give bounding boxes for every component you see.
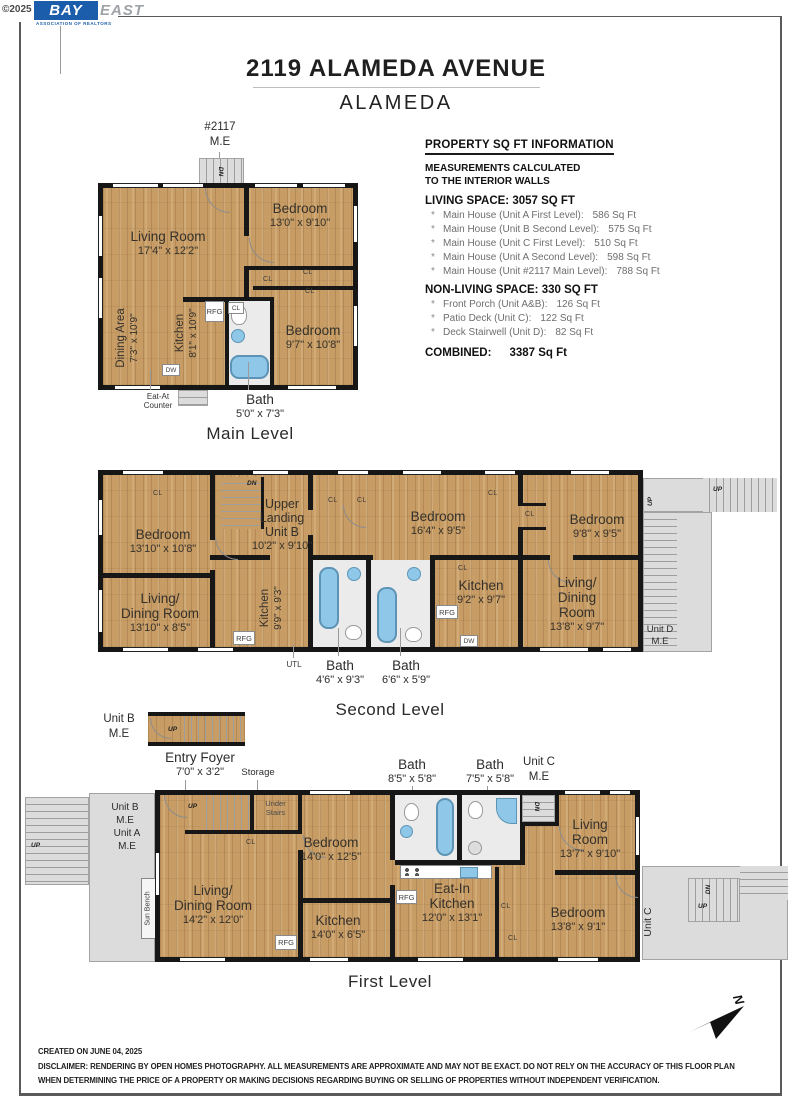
unit-a-label: Unit A M.E <box>105 827 149 853</box>
room-label-bedroom: Bedroom 13'0" x 9'10" <box>240 201 360 229</box>
sink <box>231 329 245 343</box>
unit-label-line: Unit C <box>643 907 655 936</box>
window <box>418 957 463 962</box>
room-dims: 9'7" x 10'8" <box>253 339 373 351</box>
closet-label: CL <box>525 511 535 518</box>
bullet: * <box>431 224 443 235</box>
wall <box>495 867 499 957</box>
refrigerator-tag: RFG <box>233 631 255 645</box>
window <box>303 183 345 188</box>
disclaimer-line2: WHEN DETERMINING THE PRICE OF A PROPERTY… <box>38 1076 659 1085</box>
room-name: Living <box>545 817 635 832</box>
page-border-top <box>118 16 782 17</box>
up-label: UP <box>698 903 707 910</box>
up-label: UP <box>188 803 197 810</box>
combined-value: 3387 Sq Ft <box>509 347 567 359</box>
toilet <box>468 801 483 819</box>
unit-b-label: Unit B M.E <box>103 801 147 827</box>
disclaimer-line1: DISCLAIMER: RENDERING BY OPEN HOMES PHOT… <box>38 1062 735 1071</box>
item-label: Main House (Unit A First Level): <box>443 210 584 221</box>
closet-label: CL <box>263 276 273 283</box>
item-label: Main House (Unit B Second Level): <box>443 224 599 235</box>
item-label: Main House (Unit C First Level): <box>443 238 585 249</box>
refrigerator-tag: RFG <box>205 301 224 322</box>
room-name: Landing <box>242 511 322 525</box>
page-title: 2119 ALAMEDA AVENUE <box>0 55 792 83</box>
room-dims: 12'0" x 13'1" <box>412 912 492 924</box>
combined-total: COMBINED:3387 Sq Ft <box>425 347 705 359</box>
room-label-bedroom: Bedroom 16'4" x 9'5" <box>388 509 488 537</box>
dishwasher-tag: DW <box>460 635 478 647</box>
wall <box>244 266 353 270</box>
item-value: 510 Sq Ft <box>594 238 637 249</box>
room-name: Room <box>537 605 617 620</box>
room-dims: 9'8" x 9'5" <box>552 528 642 540</box>
room-label-kitchen: Kitchen 9'9" x 9'3" <box>258 568 286 648</box>
annotation-line: Stairs <box>253 809 298 818</box>
unit-label-line: Unit A <box>105 827 149 840</box>
title-divider <box>253 87 540 88</box>
room-dims: 13'8" x 9'7" <box>537 621 617 633</box>
measurements-line2: TO THE INTERIOR WALLS <box>425 175 705 188</box>
nonliving-item: *Patio Deck (Unit C):122 Sq Ft <box>431 313 705 324</box>
living-item: *Main House (Unit B Second Level):575 Sq… <box>431 224 705 235</box>
bullet: * <box>431 238 443 249</box>
nonliving-space-heading: NON-LIVING SPACE: 330 SQ FT <box>425 284 705 296</box>
bullet: * <box>431 210 443 221</box>
dn-label: DN <box>217 167 224 176</box>
room-label-bedroom: Bedroom 9'8" x 9'5" <box>552 512 642 540</box>
room-dims: 13'10" x 8'5" <box>110 622 210 634</box>
room-name: Bedroom <box>113 527 213 542</box>
room-label-eat-in-kitchen: Eat-In Kitchen 12'0" x 13'1" <box>412 881 492 925</box>
interior-stairs <box>200 795 250 830</box>
room-name: Entry Foyer <box>160 750 240 766</box>
leader-line <box>338 628 339 656</box>
room-dims: 14'0" x 12'5" <box>281 851 381 863</box>
annotation-line: Eat-At <box>128 392 188 401</box>
room-dims: 17'4" x 12'2" <box>108 245 228 257</box>
room-dims: 5'0" x 7'3" <box>215 408 305 421</box>
window <box>98 278 103 318</box>
wall <box>430 555 550 560</box>
room-name: Bedroom <box>552 512 642 527</box>
item-value: 122 Sq Ft <box>540 313 583 324</box>
window <box>288 385 336 390</box>
level-caption: Second Level <box>290 700 490 720</box>
room-label-bedroom: Bedroom 14'0" x 12'5" <box>281 835 381 863</box>
wall <box>253 286 353 290</box>
window <box>155 853 160 895</box>
closet-label: CL <box>357 497 367 504</box>
door-arc <box>205 188 230 213</box>
room-dims: 14'0" x 6'5" <box>298 929 378 941</box>
floor-drain <box>468 841 482 855</box>
room-name: Eat-In <box>412 881 492 896</box>
room-label-bedroom: Bedroom 9'7" x 10'8" <box>253 323 373 351</box>
room-dims: 7'0" x 3'2" <box>160 766 240 779</box>
unit-label-line: M.E <box>196 135 244 150</box>
room-name: Living/ <box>173 883 253 898</box>
storage-annotation: Storage <box>230 768 286 779</box>
room-label-living-dining: Living/ Dining Room 13'10" x 8'5" <box>110 591 210 635</box>
room-label-living-dining: Living/ Dining Room 14'2" x 12'0" <box>173 883 253 927</box>
door-arc <box>249 238 274 263</box>
bath-annotation: Bath 5'0" x 7'3" <box>215 392 305 420</box>
room-dims: 9'9" x 9'3" <box>273 586 284 630</box>
room-name: Bedroom <box>253 323 373 338</box>
living-space-heading: LIVING SPACE: 3057 SQ FT <box>425 195 705 207</box>
floorplan-page: ©2025 BAY EAST ASSOCIATION OF REALTORS 2… <box>0 0 792 1120</box>
window <box>198 647 233 652</box>
closet-label: CL <box>458 565 468 572</box>
unit-label-line: Unit B <box>103 801 147 814</box>
living-item: *Main House (Unit #2117 Main Level):788 … <box>431 266 705 277</box>
sink <box>347 567 361 581</box>
room-name: Kitchen <box>259 589 272 627</box>
room-label-living-room: Living Room 17'4" x 12'2" <box>108 229 228 257</box>
closet-label: CL <box>153 490 163 497</box>
room-dims: 9'2" x 9'7" <box>441 594 521 606</box>
closet-label: CL <box>501 903 511 910</box>
room-name: Bedroom <box>388 509 488 524</box>
room-label-kitchen: Kitchen 8'1" x 10'9" <box>173 293 201 373</box>
leader-line <box>150 370 151 390</box>
unit-label-line: M.E <box>96 727 142 742</box>
window <box>565 790 600 795</box>
room-name: Kitchen <box>174 314 187 352</box>
room-dims: 16'4" x 9'5" <box>388 525 488 537</box>
window <box>635 817 640 855</box>
closet-label: CL <box>303 269 313 276</box>
window <box>571 470 609 475</box>
bathtub <box>377 587 397 643</box>
wall <box>518 503 546 506</box>
dn-label: DN <box>247 480 256 487</box>
sink <box>400 825 413 838</box>
unit-2117-label: #2117 M.E <box>196 120 244 150</box>
first-level-plan: UP Under Stairs CL DN <box>155 790 640 962</box>
room-dims: 14'2" x 12'0" <box>173 914 253 926</box>
unit-label-line: Unit C <box>516 755 562 770</box>
second-level-plan: DN RFG RFG DW CL CL CL CL CL CL <box>98 470 643 652</box>
annotation-line: Counter <box>128 401 188 410</box>
room-name: Bath <box>215 392 305 408</box>
room-dims: 13'0" x 9'10" <box>240 217 360 229</box>
wall <box>103 573 210 578</box>
room-name: Bedroom <box>240 201 360 216</box>
sink <box>407 567 421 581</box>
up-label: UP <box>713 486 722 493</box>
created-date: CREATED ON JUNE 04, 2025 <box>38 1047 142 1056</box>
bullet: * <box>431 299 443 310</box>
wall <box>210 570 215 647</box>
room-dims: 13'7" x 9'10" <box>545 848 635 860</box>
item-value: 126 Sq Ft <box>556 299 599 310</box>
refrigerator-tag: RFG <box>275 935 297 950</box>
living-item: *Main House (Unit A First Level):586 Sq … <box>431 210 705 221</box>
closet-label: CL <box>328 497 338 504</box>
door-arc <box>615 875 638 898</box>
bullet: * <box>431 266 443 277</box>
wall <box>185 830 302 834</box>
stove-burners <box>404 868 424 876</box>
item-value: 82 Sq Ft <box>555 327 593 338</box>
window <box>98 216 103 256</box>
window <box>338 470 368 475</box>
wall <box>518 527 546 530</box>
kitchen-sink <box>460 867 478 878</box>
room-name: Unit B <box>242 525 322 539</box>
measurements-line1: MEASUREMENTS CALCULATED <box>425 162 705 175</box>
window <box>98 590 103 632</box>
bathtub <box>230 355 269 379</box>
item-label: Front Porch (Unit A&B): <box>443 299 547 310</box>
up-label: UP <box>31 842 40 849</box>
page-border-bottom <box>19 1093 782 1096</box>
window <box>123 647 168 652</box>
bullet: * <box>431 313 443 324</box>
unit-label-line: Unit B <box>96 712 142 727</box>
window <box>163 183 203 188</box>
room-dims: 8'5" x 5'8" <box>377 773 447 786</box>
room-name: Kitchen <box>441 578 521 593</box>
dn-label: DN <box>533 802 540 811</box>
window <box>115 385 160 390</box>
unit-label-line: M.E <box>105 840 149 853</box>
room-label-bedroom: Bedroom 13'8" x 9'1" <box>528 905 628 933</box>
exterior-stairs <box>25 797 89 885</box>
wall <box>210 555 270 560</box>
refrigerator-tag: RFG <box>436 605 458 619</box>
unit-b-stairs: UP <box>148 712 245 746</box>
unit-c-label: Unit C M.E <box>516 755 562 785</box>
unit-label-line: M.E <box>103 814 147 827</box>
room-name: Bath <box>455 757 525 773</box>
deck-stairs <box>740 866 788 900</box>
window <box>98 500 103 535</box>
room-dims: 13'10" x 10'8" <box>113 543 213 555</box>
closet-label: CL <box>508 935 518 942</box>
property-sqft-info: PROPERTY SQ FT INFORMATION MEASUREMENTS … <box>425 135 705 359</box>
window <box>603 647 631 652</box>
room-name: Dining Room <box>173 898 253 913</box>
closet-label: CL <box>246 839 256 846</box>
bullet: * <box>431 252 443 263</box>
room-dims: 7'3" x 10'9" <box>129 313 140 362</box>
room-dims: 13'8" x 9'1" <box>528 921 628 933</box>
bullet: * <box>431 327 443 338</box>
item-value: 788 Sq Ft <box>616 266 659 277</box>
room-name: Dining <box>537 590 617 605</box>
room-name: Dining Room <box>110 606 210 621</box>
room-label-bedroom: Bedroom 13'10" x 10'8" <box>113 527 213 555</box>
wall <box>390 885 395 957</box>
toilet <box>345 625 362 640</box>
toilet <box>405 627 422 642</box>
bath-annotation: Bath 8'5" x 5'8" <box>377 757 447 785</box>
room-dims: 7'5" x 5'8" <box>455 773 525 786</box>
sun-bench-label: Sun Bench <box>145 891 152 925</box>
item-label: Deck Stairwell (Unit D): <box>443 327 546 338</box>
room-dims: 6'6" x 5'9" <box>368 674 444 687</box>
room-name: Kitchen <box>298 913 378 928</box>
item-value: 598 Sq Ft <box>607 252 650 263</box>
toilet <box>404 803 419 821</box>
exterior-stairs <box>703 478 777 512</box>
item-label: Main House (Unit #2117 Main Level): <box>443 266 607 277</box>
logo-bay: BAY <box>34 1 98 20</box>
room-label-kitchen: Kitchen 14'0" x 6'5" <box>298 913 378 941</box>
deck-stairs <box>688 878 740 922</box>
window <box>558 957 598 962</box>
nonliving-item: *Deck Stairwell (Unit D):82 Sq Ft <box>431 327 705 338</box>
main-level-plan: RFG CL DW CL CL CL Living Room 17'4" x 1… <box>98 183 358 390</box>
window <box>610 790 630 795</box>
room-label-dining-area: Dining Area 7'3" x 10'9" <box>114 298 142 378</box>
room-name: Bath <box>368 658 444 674</box>
room-name: Living/ <box>537 575 617 590</box>
unit-b-label: Unit B M.E <box>96 712 142 742</box>
page-subtitle: ALAMEDA <box>0 92 792 115</box>
bathtub <box>319 567 339 629</box>
living-item: *Main House (Unit C First Level):510 Sq … <box>431 238 705 249</box>
logo-east: EAST <box>100 1 144 20</box>
page-border-left <box>19 22 21 1096</box>
bath-annotation: Bath 7'5" x 5'8" <box>455 757 525 785</box>
unit-label-line: #2117 <box>196 120 244 135</box>
room-label-upper-landing: Upper Landing Unit B 10'2" x 9'10" <box>242 497 322 552</box>
under-stairs-label: Under Stairs <box>253 800 298 817</box>
room-name: Bedroom <box>528 905 628 920</box>
door-arc <box>164 795 187 818</box>
window <box>485 470 515 475</box>
combined-label: COMBINED: <box>425 347 491 359</box>
window <box>540 647 588 652</box>
info-heading: PROPERTY SQ FT INFORMATION <box>425 139 614 155</box>
room-name: Bedroom <box>281 835 381 850</box>
wall <box>573 555 638 560</box>
closet-label: CL <box>488 490 498 497</box>
unit-label-line: Unit D <box>638 624 682 636</box>
room-name: Upper <box>242 497 322 511</box>
closet-tag: CL <box>228 302 244 314</box>
eat-at-counter-annotation: Eat-At Counter <box>128 392 188 410</box>
wall <box>298 898 395 903</box>
copyright-text: ©2025 <box>2 4 32 15</box>
level-caption: First Level <box>290 972 490 992</box>
living-item: *Main House (Unit A Second Level):598 Sq… <box>431 252 705 263</box>
room-dims: 8'1" x 10'9" <box>188 308 199 357</box>
item-value: 586 Sq Ft <box>593 210 636 221</box>
window <box>255 183 297 188</box>
logo-subtext: ASSOCIATION OF REALTORS <box>36 21 112 26</box>
window <box>123 470 163 475</box>
wall <box>244 266 249 297</box>
room-name: Bath <box>377 757 447 773</box>
item-value: 575 Sq Ft <box>608 224 651 235</box>
window <box>180 957 225 962</box>
room-label-living-room: Living Room 13'7" x 9'10" <box>545 817 635 861</box>
leader-line <box>248 362 249 390</box>
door-arc <box>343 505 366 528</box>
unit-c-deck-label: Unit C <box>636 882 662 962</box>
leader-line <box>293 644 294 658</box>
wall <box>518 475 523 505</box>
window <box>403 470 441 475</box>
unit-d-label: Unit D M.E <box>638 624 682 649</box>
stair-treads <box>178 716 245 742</box>
bath-annotation: Bath 6'6" x 5'9" <box>368 658 444 686</box>
room-name: Dining Area <box>115 308 128 367</box>
unit-label-line: M.E <box>516 770 562 785</box>
unit-label-line: M.E <box>638 636 682 648</box>
dn-label: DN <box>705 885 712 894</box>
room-label-kitchen: Kitchen 9'2" x 9'7" <box>441 578 521 606</box>
item-label: Main House (Unit A Second Level): <box>443 252 598 263</box>
room-name: Living Room <box>108 229 228 244</box>
room-name: Living/ <box>110 591 210 606</box>
nonliving-item: *Front Porch (Unit A&B):126 Sq Ft <box>431 299 705 310</box>
window <box>113 183 158 188</box>
wall <box>298 795 302 833</box>
room-name: Kitchen <box>412 896 492 911</box>
bathtub <box>436 798 454 856</box>
leader-line <box>400 628 401 656</box>
window <box>310 790 350 795</box>
item-label: Patio Deck (Unit C): <box>443 313 531 324</box>
sun-bench: Sun Bench <box>141 878 156 939</box>
north-compass: N <box>688 992 752 1040</box>
up-label: UP <box>647 497 654 506</box>
room-name: Room <box>545 832 635 847</box>
room-label-living-dining: Living/ Dining Room 13'8" x 9'7" <box>537 575 617 634</box>
measurements-note: MEASUREMENTS CALCULATED TO THE INTERIOR … <box>425 162 705 188</box>
entry-foyer-annotation: Entry Foyer 7'0" x 3'2" <box>160 750 240 778</box>
room-dims: 10'2" x 9'10" <box>242 540 322 552</box>
up-label: UP <box>168 726 177 733</box>
level-caption: Main Level <box>150 424 350 444</box>
closet-label: CL <box>305 288 315 295</box>
window <box>253 470 288 475</box>
wall <box>430 555 435 647</box>
window <box>310 957 348 962</box>
